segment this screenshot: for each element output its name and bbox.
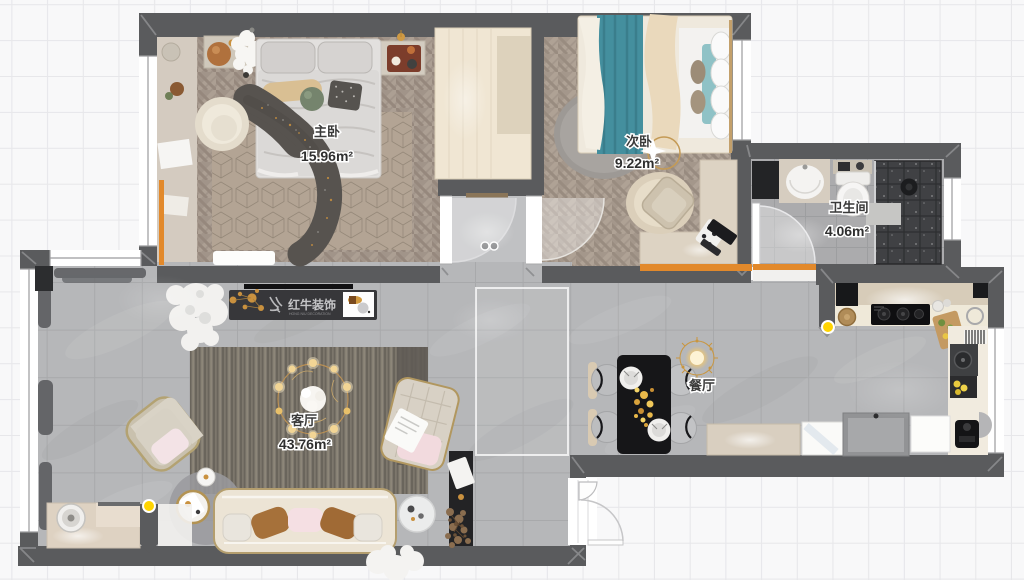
svg-text:客厅: 客厅: [291, 413, 317, 428]
svg-text:次卧: 次卧: [626, 134, 652, 149]
svg-text:43.76m²: 43.76m²: [279, 436, 331, 452]
svg-text:15.96m²: 15.96m²: [301, 148, 353, 164]
svg-text:HONG NIU DECORATION: HONG NIU DECORATION: [289, 312, 331, 316]
svg-text:9.22m²: 9.22m²: [615, 155, 660, 171]
svg-text:主卧: 主卧: [314, 124, 340, 139]
svg-text:红牛装饰: 红牛装饰: [288, 297, 336, 312]
svg-text:4.06m²: 4.06m²: [825, 223, 870, 239]
svg-text:卫生间: 卫生间: [829, 200, 868, 215]
svg-text:餐厅: 餐厅: [688, 378, 715, 393]
